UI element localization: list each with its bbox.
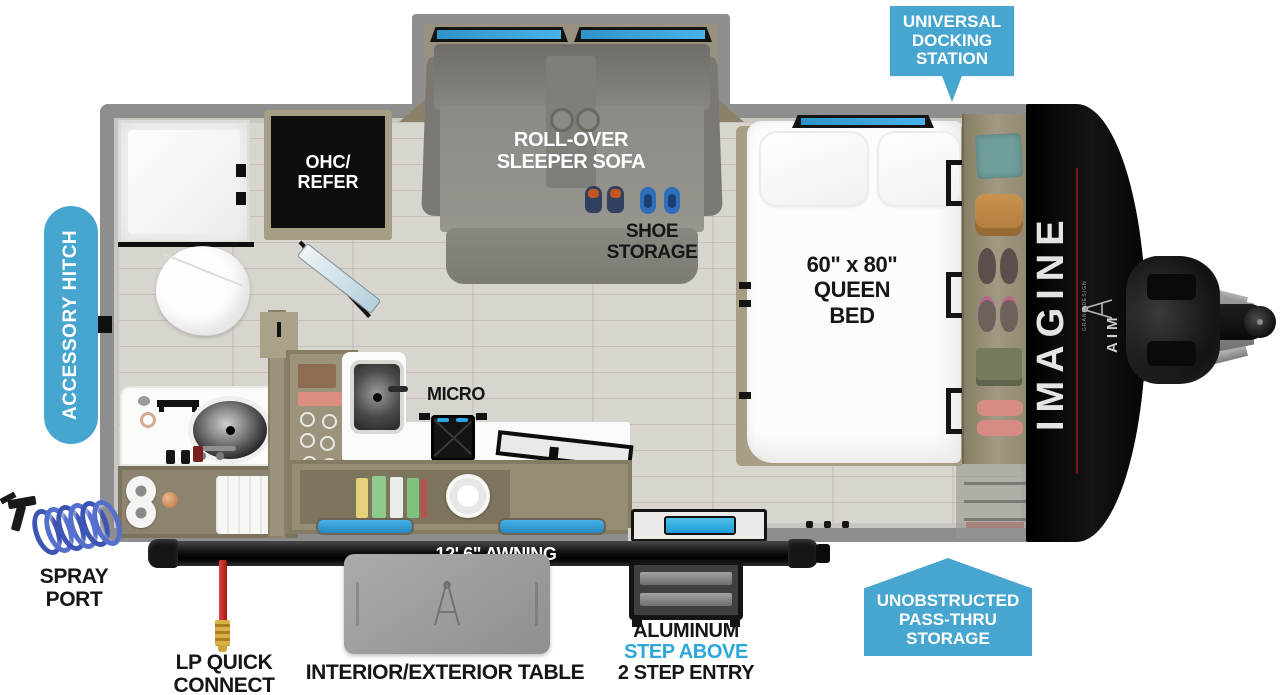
lp-fitting (215, 620, 230, 646)
flip-flop (977, 420, 1023, 436)
faucet-knob (216, 452, 224, 460)
cooktop (431, 415, 475, 461)
bed-side-latch (739, 282, 751, 289)
callout-accessory-hitch: ACCESSORY HITCH (44, 206, 98, 444)
wardrobe-door-pull (946, 272, 962, 318)
sandal (640, 187, 656, 214)
cabinet-item-brown (298, 364, 336, 388)
lp-hose (219, 560, 227, 624)
shower-hinge (236, 192, 246, 205)
wine-glass (320, 436, 335, 451)
soap-dish (138, 396, 150, 406)
step-above-interior (631, 509, 767, 542)
sneaker (607, 186, 624, 213)
shower-door-track (118, 242, 254, 247)
book (372, 476, 386, 518)
kitchen-window (498, 518, 606, 535)
wardrobe-item-clothes (976, 348, 1022, 386)
wall-dot (824, 521, 831, 528)
exterior-table (344, 554, 550, 654)
bath-bomb (162, 492, 178, 508)
wine-glass (322, 414, 337, 429)
label-spray-port: SPRAY PORT (26, 566, 122, 611)
flip-flop (977, 400, 1023, 416)
vanity-knob (181, 450, 190, 464)
entry-steps (629, 560, 743, 620)
towel-bar (157, 400, 199, 407)
book (407, 478, 419, 518)
floorplan-canvas: ROLL-OVER SLEEPER SOFA SHOE STORAGE OHC/… (0, 0, 1280, 695)
wardrobe-shoe (1000, 296, 1018, 332)
wardrobe-shoe (978, 248, 996, 284)
propane-cover (1126, 256, 1220, 384)
bed-side-latch (739, 300, 751, 307)
stove-rail (476, 413, 487, 420)
refrigerator-ohc: OHC/ REFER (271, 116, 385, 228)
wardrobe-item-towel (975, 133, 1023, 179)
toilet-paper-roll (126, 498, 156, 528)
kitchen-window (316, 518, 414, 535)
brand-underline (1076, 168, 1078, 474)
wine-glass (300, 412, 315, 427)
slideout-window-left (430, 27, 568, 42)
slideout-window-right (574, 27, 712, 42)
shower (118, 120, 250, 244)
awning-end-cap (788, 539, 818, 568)
stove-rail (419, 413, 430, 420)
bed-side-latch (739, 392, 751, 399)
brand-imagine: IMAGINE (1030, 140, 1078, 504)
cabinet-item-pink (298, 392, 342, 406)
wall-dot (842, 521, 849, 528)
book (356, 478, 368, 518)
label-shoe-storage: SHOE STORAGE (592, 222, 712, 263)
callout-pass-thru-storage: UNOBSTRUCTED PASS-THRU STORAGE (864, 558, 1032, 656)
label-interior-exterior-table: INTERIOR/EXTERIOR TABLE (290, 662, 600, 685)
burner-indicator (456, 418, 468, 422)
table-side-mark (356, 582, 359, 626)
wardrobe-door-pull (946, 160, 962, 206)
callout-accessory-hitch-text: ACCESSORY HITCH (44, 206, 98, 444)
wall-dot (806, 521, 813, 528)
label-micro: MICRO (416, 385, 496, 404)
ring-accessory (140, 412, 156, 428)
callout-pass-thru-storage-text: UNOBSTRUCTED PASS-THRU STORAGE (877, 591, 1020, 648)
wine-glass (300, 433, 315, 448)
label-queen-bed: 60" x 80" QUEEN BED (780, 252, 924, 328)
soap-pump (193, 446, 203, 462)
sneaker (585, 186, 602, 213)
table-side-mark (535, 582, 538, 626)
wardrobe-shoe (1000, 248, 1018, 284)
towel-stack (216, 476, 274, 534)
label-entry-step-above: STEP ABOVE (600, 642, 772, 664)
label-ohc-refer: OHC/ REFER (297, 152, 358, 192)
pass-thru-storage-zone (956, 464, 1034, 538)
label-rollover-sleeper-sofa: ROLL-OVER SLEEPER SOFA (459, 130, 683, 173)
pillow (759, 131, 869, 207)
kitchen-faucet (388, 386, 408, 392)
shower-pan (128, 130, 240, 234)
plate (446, 474, 490, 518)
awning-end-cap (148, 539, 178, 568)
wardrobe-item-bag (975, 194, 1023, 236)
bedroom-window (792, 115, 934, 128)
wardrobe-door-pull (946, 388, 962, 434)
compass-logo-icon (427, 576, 467, 630)
burner-indicator (437, 418, 449, 422)
book (421, 479, 427, 518)
wardrobe-shoe (978, 296, 996, 332)
label-entry-two-step: 2 STEP ENTRY (600, 663, 772, 685)
callout-universal-docking-station: UNIVERSAL DOCKING STATION (890, 6, 1014, 102)
awning-motor (816, 544, 830, 563)
shower-hinge (236, 164, 246, 177)
label-lp-quick-connect: LP QUICK CONNECT (154, 652, 294, 695)
label-entry-aluminum: ALUMINUM (600, 621, 772, 643)
vanity-knob (166, 450, 175, 464)
book (390, 477, 403, 518)
callout-universal-docking-station-text: UNIVERSAL DOCKING STATION (903, 12, 1001, 68)
coupler-ball-socket (1244, 306, 1276, 338)
sandal (664, 187, 680, 214)
brand-aim: AIM (1104, 296, 1126, 370)
kitchen-sink (350, 360, 404, 434)
